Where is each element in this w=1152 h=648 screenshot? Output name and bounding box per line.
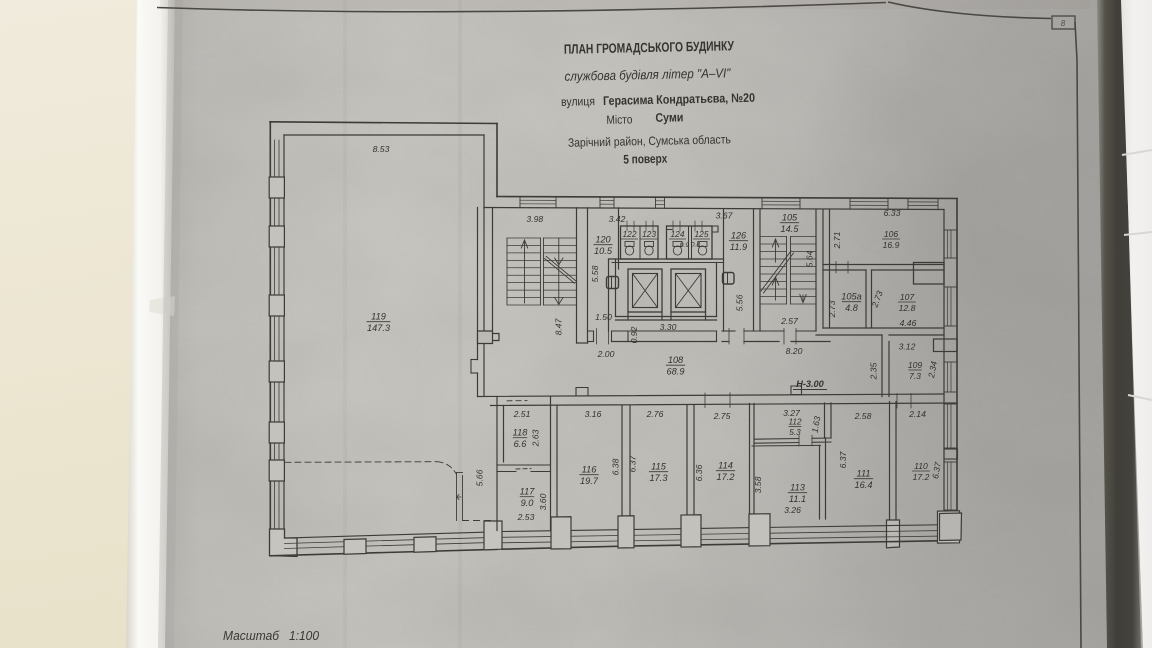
svg-text:105а: 105а (841, 291, 861, 301)
svg-text:6.6: 6.6 (514, 439, 528, 449)
svg-text:117: 117 (520, 486, 536, 496)
svg-text:14.5: 14.5 (781, 224, 800, 234)
svg-text:3.30: 3.30 (660, 322, 677, 332)
svg-text:8.20: 8.20 (786, 346, 803, 356)
svg-text:107: 107 (900, 292, 916, 302)
svg-text:119: 119 (371, 311, 386, 321)
svg-text:1.50: 1.50 (595, 312, 612, 322)
svg-text:113: 113 (790, 482, 806, 492)
svg-text:4.46: 4.46 (900, 318, 917, 328)
svg-text:3.42: 3.42 (609, 214, 626, 224)
svg-text:2.53: 2.53 (517, 512, 535, 522)
svg-text:115: 115 (651, 461, 667, 471)
svg-text:Місто: Місто (606, 112, 633, 127)
svg-text:2.00: 2.00 (597, 349, 615, 359)
svg-text:2.76: 2.76 (646, 409, 664, 419)
svg-text:147.3: 147.3 (367, 323, 391, 333)
svg-text:8.53: 8.53 (373, 144, 390, 154)
svg-text:3.12: 3.12 (899, 342, 916, 352)
svg-text:68.9: 68.9 (667, 367, 685, 377)
svg-text:7.3: 7.3 (909, 371, 921, 381)
svg-text:2.73: 2.73 (827, 300, 837, 318)
svg-text:109: 109 (908, 360, 923, 370)
svg-text:11.1: 11.1 (789, 494, 806, 504)
svg-text:11.9: 11.9 (730, 242, 747, 252)
svg-text:19.7: 19.7 (580, 476, 599, 486)
svg-text:6.37: 6.37 (838, 450, 848, 468)
svg-text:6.33: 6.33 (884, 208, 901, 218)
svg-text:114: 114 (718, 460, 733, 470)
svg-text:5.66: 5.66 (475, 469, 485, 486)
svg-text:Масштаб 1:100: Масштаб 1:100 (223, 628, 320, 643)
svg-text:8: 8 (1061, 19, 1066, 28)
svg-text:120: 120 (595, 234, 611, 244)
svg-text:Н-3.00: Н-3.00 (796, 379, 824, 389)
svg-text:125: 125 (695, 229, 709, 239)
svg-text:2.71: 2.71 (832, 231, 842, 249)
svg-text:2.51: 2.51 (513, 409, 531, 419)
svg-text:2.75: 2.75 (713, 411, 731, 421)
svg-text:0.8: 0.8 (691, 242, 701, 249)
svg-text:17.2: 17.2 (717, 472, 735, 482)
svg-text:2.57: 2.57 (780, 316, 799, 326)
svg-text:111: 111 (857, 468, 871, 478)
svg-text:5 поверх: 5 поверх (623, 152, 667, 167)
svg-text:126: 126 (731, 230, 747, 240)
svg-text:123: 123 (642, 229, 656, 239)
svg-text:5.3: 5.3 (789, 428, 801, 437)
svg-text:3.16: 3.16 (585, 409, 602, 419)
svg-text:17.2: 17.2 (913, 472, 930, 482)
svg-text:108: 108 (668, 355, 684, 365)
svg-text:116: 116 (582, 464, 598, 474)
svg-text:6.36: 6.36 (694, 464, 704, 481)
svg-text:5.64: 5.64 (805, 250, 815, 267)
svg-text:106: 106 (884, 229, 899, 239)
svg-text:17.3: 17.3 (650, 473, 669, 483)
svg-text:16.4: 16.4 (855, 480, 873, 490)
svg-text:2.35: 2.35 (869, 362, 879, 380)
svg-text:5.56: 5.56 (735, 294, 745, 311)
svg-text:3.67: 3.67 (716, 211, 734, 221)
svg-text:2.58: 2.58 (854, 411, 872, 421)
svg-text:3.27: 3.27 (783, 408, 801, 418)
svg-text:112: 112 (788, 418, 801, 427)
svg-text:3.58: 3.58 (753, 476, 763, 493)
svg-text:6.37: 6.37 (628, 454, 638, 472)
svg-text:0.92: 0.92 (629, 326, 639, 343)
svg-text:Суми: Суми (655, 110, 683, 125)
svg-text:12.8: 12.8 (899, 303, 916, 313)
svg-text:16.9: 16.9 (883, 240, 900, 250)
svg-text:6.38: 6.38 (611, 458, 621, 475)
svg-text:110: 110 (914, 461, 928, 471)
svg-text:2.14: 2.14 (908, 409, 926, 419)
svg-text:124: 124 (671, 229, 685, 239)
svg-text:3.26: 3.26 (784, 505, 801, 515)
svg-text:2.63: 2.63 (531, 429, 541, 447)
svg-text:вулиця: вулиця (561, 94, 595, 109)
svg-text:3.60: 3.60 (538, 493, 548, 510)
svg-text:8.47: 8.47 (554, 317, 564, 335)
svg-text:3.98: 3.98 (526, 214, 543, 224)
svg-text:122: 122 (623, 229, 637, 239)
svg-text:10.5: 10.5 (594, 246, 613, 256)
svg-text:9.0: 9.0 (521, 498, 535, 508)
svg-text:0.9: 0.9 (680, 242, 690, 249)
svg-text:105: 105 (782, 212, 798, 222)
svg-text:4.8: 4.8 (845, 303, 859, 313)
svg-text:5.58: 5.58 (590, 265, 600, 282)
svg-text:118: 118 (513, 427, 529, 437)
